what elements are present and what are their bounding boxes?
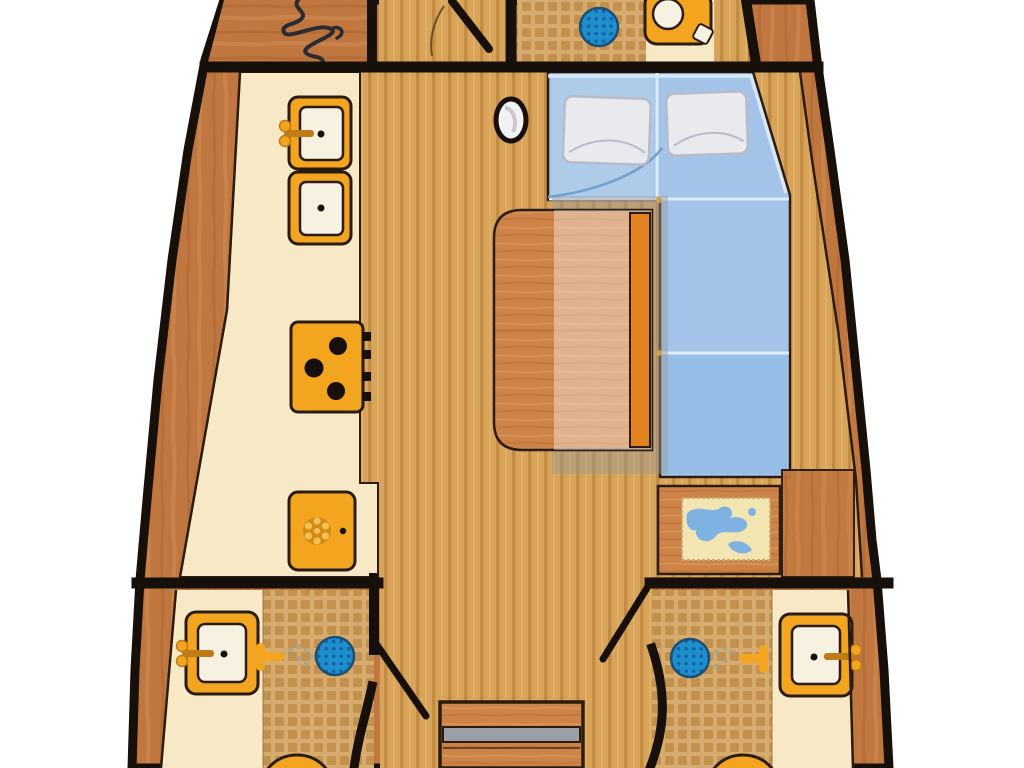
faucet-knob: [280, 136, 291, 147]
faucet-spout: [182, 650, 214, 657]
vent-petal: [322, 532, 329, 539]
toilet-forward: [645, 0, 714, 45]
starboard-shower-tiles: [652, 590, 772, 768]
floor-plan-stage: Sailing yacht interior layout floor plan…: [0, 0, 1024, 768]
spray-dot: [730, 650, 735, 655]
fridge-handle-dot: [340, 528, 346, 534]
room-aft-head-port: [161, 590, 374, 768]
spray-dot: [296, 644, 301, 649]
spray-dot: [722, 646, 727, 651]
locker-floor: [208, 0, 368, 62]
shower-stem: [740, 654, 762, 663]
salon-table-group: [494, 196, 668, 474]
faucet-knob: [851, 660, 862, 671]
vent-petal: [305, 522, 312, 529]
room-forward-head: [517, 0, 748, 62]
spray-dot: [714, 650, 719, 655]
room-aft-head-starboard: [652, 590, 862, 768]
sink-drain-dot: [811, 654, 818, 661]
galley-sink-lower: [289, 172, 351, 244]
burner: [305, 359, 324, 378]
spray-dot: [310, 654, 315, 659]
stove-top: [291, 322, 363, 412]
room-bow-anchor-locker: [208, 0, 368, 62]
spray-dot: [288, 648, 293, 653]
vent-petal: [305, 532, 312, 539]
refrigerator: [289, 492, 355, 570]
faucet-knob: [177, 656, 188, 667]
nautical-chart: [682, 498, 770, 560]
pillow-body: [666, 91, 748, 156]
side-cabinet: [782, 470, 854, 577]
stove-knob: [362, 372, 371, 381]
shower-drain-forward: [580, 8, 618, 46]
companionway-steps: [440, 702, 583, 768]
deck-hatch: [496, 99, 526, 141]
vent-petal: [313, 517, 320, 524]
spray-dot: [296, 656, 301, 661]
spray-dot: [722, 658, 727, 663]
pillow-body: [563, 96, 651, 165]
pillow-right: [666, 91, 748, 156]
faucet-knob: [280, 121, 291, 132]
faucet-knob: [177, 641, 188, 652]
stove-knob: [362, 350, 371, 359]
sink-drain-dot: [221, 651, 228, 658]
vent-petal: [322, 522, 329, 529]
spray-dot: [714, 664, 719, 669]
galley-sink-upper: [280, 97, 352, 169]
room-nav-station: [658, 470, 854, 577]
faucet-spout: [824, 653, 856, 660]
shower-drain-port: [316, 637, 354, 675]
burner: [329, 337, 347, 355]
pillow-left: [563, 96, 651, 165]
room-forward-cabin-entry: [379, 0, 506, 62]
yacht-floor-plan: Sailing yacht interior layout floor plan…: [0, 0, 1024, 768]
vent-center: [314, 528, 320, 534]
vent-petal: [313, 537, 320, 544]
settee-cushion-deep: [663, 355, 787, 474]
washbasin-port: [177, 612, 259, 694]
shower-stem: [262, 652, 284, 661]
sink-drain-dot: [318, 131, 325, 138]
faucet-knob: [851, 645, 862, 656]
toilet-forward-bowl: [653, 0, 683, 29]
burner: [327, 382, 345, 400]
shower-drain-starboard: [671, 639, 709, 677]
chart-water: [748, 508, 756, 516]
table-fiddle-rail: [630, 213, 650, 447]
stove-knob: [362, 392, 371, 401]
step-tread: [443, 727, 580, 742]
spray-dot: [304, 648, 309, 653]
stove-3-burner: [291, 322, 371, 412]
sink-drain-dot: [318, 205, 325, 212]
spray-dot: [304, 662, 309, 667]
stove-knob: [362, 332, 371, 341]
